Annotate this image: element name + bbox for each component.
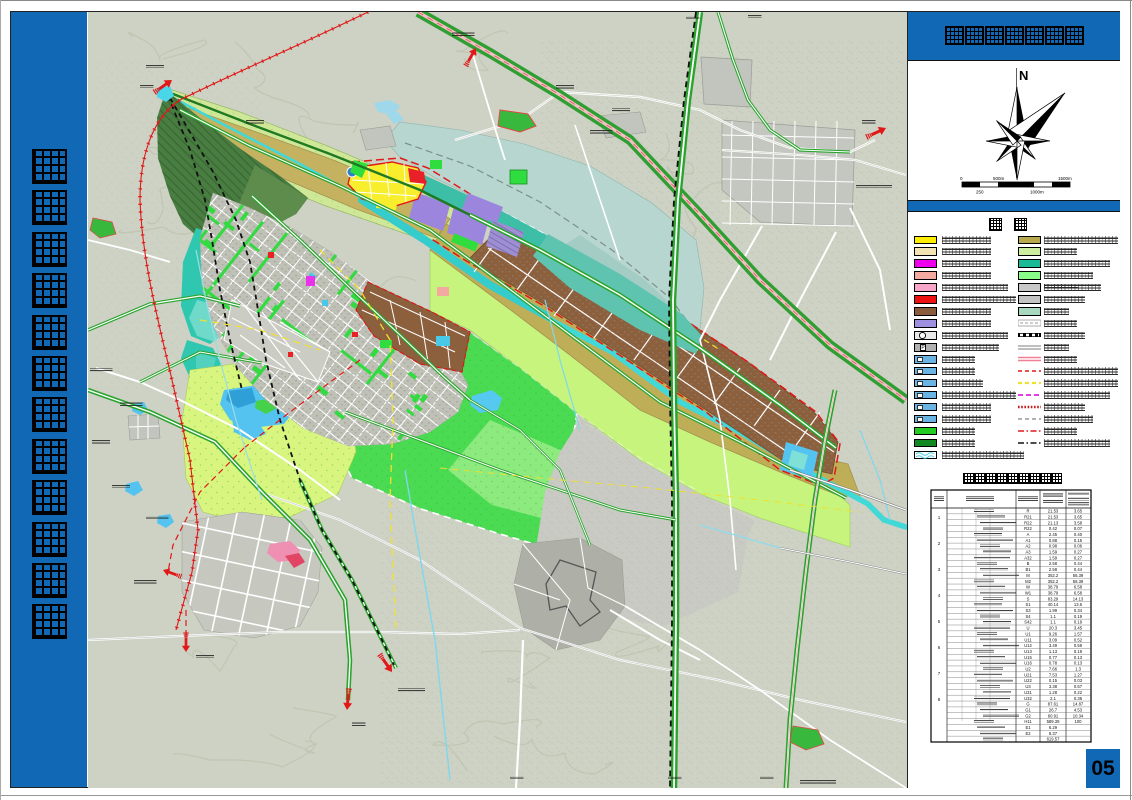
svg-text:0.78: 0.78 bbox=[1049, 661, 1058, 666]
svg-text:H11: H11 bbox=[1024, 719, 1032, 724]
svg-text:0.19: 0.19 bbox=[1074, 614, 1083, 619]
svg-text:2.58: 2.58 bbox=[1049, 567, 1058, 572]
svg-text:E2: E2 bbox=[1025, 731, 1031, 736]
svg-text:3.45: 3.45 bbox=[1074, 626, 1083, 631]
svg-text:S: S bbox=[1027, 596, 1030, 601]
svg-text:0.15: 0.15 bbox=[1074, 538, 1083, 543]
svg-text:0: 0 bbox=[960, 176, 963, 181]
svg-text:2.1: 2.1 bbox=[1050, 696, 1056, 701]
svg-text:S42: S42 bbox=[1024, 620, 1032, 625]
svg-text:3.49: 3.49 bbox=[1049, 643, 1058, 648]
svg-text:0.19: 0.19 bbox=[1074, 649, 1083, 654]
svg-text:B: B bbox=[1027, 561, 1030, 566]
svg-text:0.44: 0.44 bbox=[1074, 567, 1083, 572]
svg-text:619.57: 619.57 bbox=[1047, 737, 1060, 742]
svg-text:0.06: 0.06 bbox=[1074, 544, 1083, 549]
svg-text:U1: U1 bbox=[1025, 631, 1031, 636]
svg-text:2.45: 2.45 bbox=[1049, 532, 1058, 537]
svg-text:21.53: 21.53 bbox=[1048, 509, 1059, 514]
svg-text:589.39: 589.39 bbox=[1047, 719, 1060, 724]
svg-text:1.28: 1.28 bbox=[1049, 690, 1058, 695]
svg-text:0.42: 0.42 bbox=[1049, 526, 1058, 531]
svg-text:0.44: 0.44 bbox=[1074, 561, 1083, 566]
svg-text:0.07: 0.07 bbox=[1074, 526, 1083, 531]
svg-text:500m: 500m bbox=[993, 176, 1005, 181]
svg-text:M2: M2 bbox=[1025, 579, 1031, 584]
svg-text:7.66: 7.66 bbox=[1049, 667, 1058, 672]
svg-text:R22: R22 bbox=[1024, 526, 1032, 531]
svg-text:R21: R21 bbox=[1024, 514, 1032, 519]
svg-text:83.29: 83.29 bbox=[1048, 596, 1059, 601]
svg-text:A2: A2 bbox=[1025, 544, 1031, 549]
svg-text:N: N bbox=[1019, 68, 1028, 83]
svg-text:1.13: 1.13 bbox=[1049, 649, 1058, 654]
svg-text:7.53: 7.53 bbox=[1049, 672, 1058, 677]
svg-text:6.58: 6.58 bbox=[1074, 585, 1083, 590]
svg-text:U31: U31 bbox=[1024, 690, 1032, 695]
svg-text:250: 250 bbox=[976, 190, 984, 195]
svg-text:0.36: 0.36 bbox=[1074, 696, 1083, 701]
svg-text:6.58: 6.58 bbox=[1074, 590, 1083, 595]
svg-text:3.65: 3.65 bbox=[1074, 509, 1083, 514]
svg-text:14.13: 14.13 bbox=[1073, 596, 1084, 601]
svg-text:60.91: 60.91 bbox=[1048, 713, 1059, 718]
svg-text:26.7: 26.7 bbox=[1049, 707, 1058, 712]
svg-text:3.38: 3.38 bbox=[1049, 684, 1058, 689]
svg-text:21.13: 21.13 bbox=[1048, 520, 1059, 525]
svg-text:A32: A32 bbox=[1024, 555, 1032, 560]
svg-text:1.3: 1.3 bbox=[1075, 667, 1081, 672]
svg-text:R22: R22 bbox=[1024, 520, 1032, 525]
svg-text:U13: U13 bbox=[1024, 649, 1032, 654]
svg-text:87.61: 87.61 bbox=[1048, 702, 1059, 707]
svg-text:U2: U2 bbox=[1025, 667, 1031, 672]
svg-text:S4: S4 bbox=[1025, 614, 1031, 619]
svg-text:1500m: 1500m bbox=[1058, 176, 1072, 181]
svg-text:0.27: 0.27 bbox=[1074, 550, 1083, 555]
svg-text:0.77: 0.77 bbox=[1049, 655, 1058, 660]
svg-text:0.88: 0.88 bbox=[1049, 538, 1058, 543]
svg-text:R: R bbox=[1026, 509, 1029, 514]
svg-text:0.13: 0.13 bbox=[1074, 661, 1083, 666]
svg-text:A3: A3 bbox=[1025, 550, 1031, 555]
svg-text:0.15: 0.15 bbox=[1049, 678, 1058, 683]
svg-text:A1: A1 bbox=[1025, 538, 1031, 543]
svg-text:4.53: 4.53 bbox=[1074, 707, 1083, 712]
svg-text:0.40: 0.40 bbox=[1074, 532, 1083, 537]
svg-text:S1: S1 bbox=[1025, 602, 1031, 607]
svg-text:0.27: 0.27 bbox=[1074, 555, 1083, 560]
svg-text:1.59: 1.59 bbox=[1049, 550, 1058, 555]
svg-text:2.58: 2.58 bbox=[1049, 561, 1058, 566]
svg-text:38.79: 38.79 bbox=[1048, 590, 1059, 595]
svg-text:1.59: 1.59 bbox=[1049, 555, 1058, 560]
svg-text:U11: U11 bbox=[1024, 637, 1032, 642]
svg-text:U12: U12 bbox=[1024, 643, 1032, 648]
svg-text:8.37: 8.37 bbox=[1049, 731, 1058, 736]
svg-text:U22: U22 bbox=[1024, 678, 1032, 683]
svg-text:U: U bbox=[1026, 626, 1029, 631]
svg-text:B1: B1 bbox=[1025, 567, 1031, 572]
svg-text:U32: U32 bbox=[1024, 696, 1032, 701]
svg-text:10.34: 10.34 bbox=[1073, 713, 1084, 718]
svg-text:W: W bbox=[1026, 585, 1030, 590]
svg-text:6.29: 6.29 bbox=[1049, 725, 1058, 730]
svg-text:G1: G1 bbox=[1025, 707, 1031, 712]
svg-text:1.57: 1.57 bbox=[1074, 631, 1083, 636]
svg-text:G: G bbox=[1026, 702, 1029, 707]
svg-text:1.1: 1.1 bbox=[1050, 620, 1056, 625]
svg-text:0.19: 0.19 bbox=[1074, 620, 1083, 625]
svg-text:100: 100 bbox=[1075, 719, 1083, 724]
svg-text:W1: W1 bbox=[1025, 590, 1032, 595]
svg-text:56.39: 56.39 bbox=[1073, 579, 1084, 584]
svg-text:S3: S3 bbox=[1025, 608, 1031, 613]
svg-text:9.26: 9.26 bbox=[1049, 631, 1058, 636]
svg-text:1.1: 1.1 bbox=[1050, 614, 1056, 619]
svg-text:1.27: 1.27 bbox=[1074, 672, 1083, 677]
svg-text:1.99: 1.99 bbox=[1049, 608, 1058, 613]
svg-text:1000m: 1000m bbox=[1030, 190, 1044, 195]
svg-text:M: M bbox=[1026, 573, 1030, 578]
svg-text:U3: U3 bbox=[1025, 684, 1031, 689]
svg-text:G2: G2 bbox=[1025, 713, 1031, 718]
svg-text:13.6: 13.6 bbox=[1074, 602, 1083, 607]
svg-text:0.98: 0.98 bbox=[1049, 544, 1058, 549]
svg-text:38.79: 38.79 bbox=[1048, 585, 1059, 590]
svg-text:A: A bbox=[1027, 532, 1030, 537]
svg-text:0.22: 0.22 bbox=[1074, 690, 1083, 695]
svg-text:0.57: 0.57 bbox=[1074, 684, 1083, 689]
svg-text:352.2: 352.2 bbox=[1048, 573, 1059, 578]
svg-text:0.03: 0.03 bbox=[1074, 678, 1083, 683]
svg-text:3.09: 3.09 bbox=[1049, 637, 1058, 642]
svg-text:14.87: 14.87 bbox=[1073, 702, 1084, 707]
svg-text:U15: U15 bbox=[1024, 655, 1032, 660]
svg-text:0.13: 0.13 bbox=[1074, 655, 1083, 660]
svg-text:U21: U21 bbox=[1024, 672, 1032, 677]
svg-text:0.52: 0.52 bbox=[1074, 637, 1083, 642]
svg-text:3.58: 3.58 bbox=[1074, 520, 1083, 525]
svg-text:3.65: 3.65 bbox=[1074, 514, 1083, 519]
svg-text:21.53: 21.53 bbox=[1048, 514, 1059, 519]
svg-text:40.14: 40.14 bbox=[1048, 602, 1059, 607]
svg-text:56.39: 56.39 bbox=[1073, 573, 1084, 578]
svg-text:20.3: 20.3 bbox=[1049, 626, 1058, 631]
svg-text:352.2: 352.2 bbox=[1048, 579, 1059, 584]
svg-text:0.34: 0.34 bbox=[1074, 608, 1083, 613]
svg-text:0.59: 0.59 bbox=[1074, 643, 1083, 648]
svg-text:U16: U16 bbox=[1024, 661, 1032, 666]
svg-text:E1: E1 bbox=[1025, 725, 1031, 730]
